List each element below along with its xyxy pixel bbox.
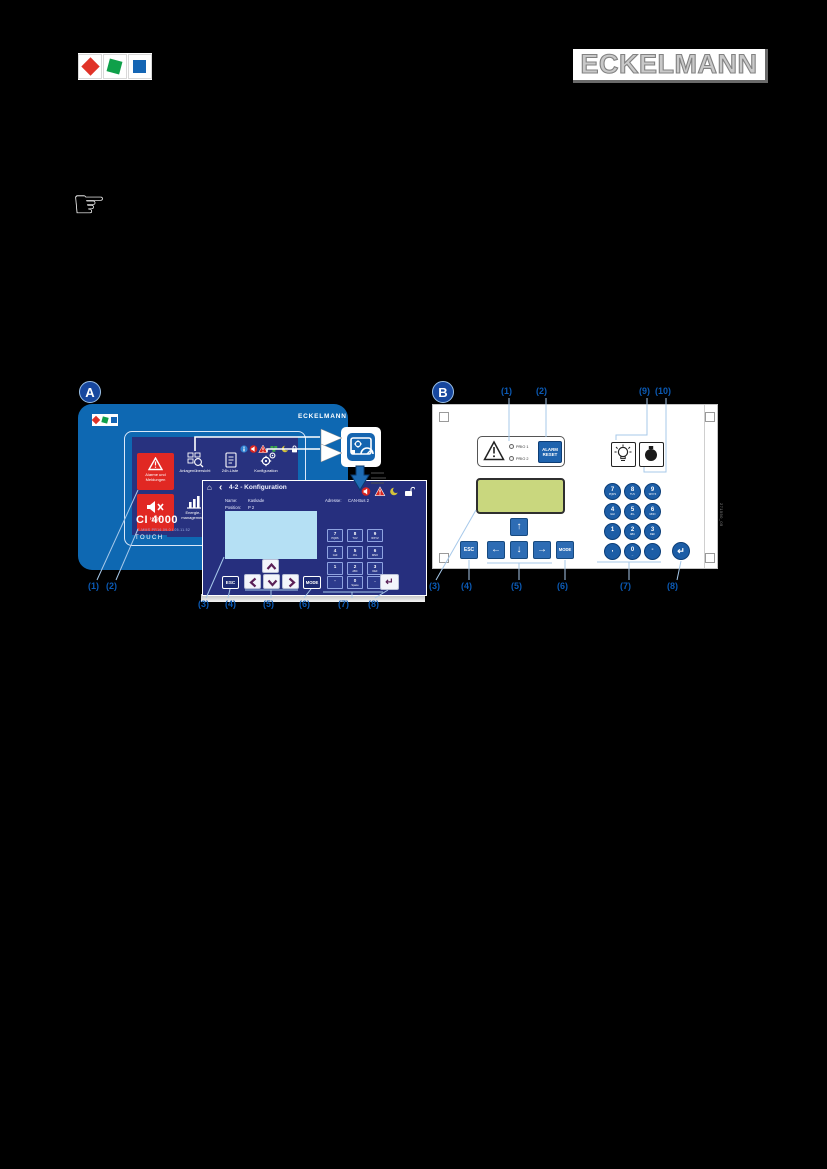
config-icon-box	[341, 427, 381, 467]
horn-mute-icon	[250, 445, 258, 453]
key-0-space[interactable]: 0Space	[347, 576, 363, 589]
service-moon-icon	[390, 487, 399, 495]
enter-button[interactable]: ↵	[672, 542, 690, 560]
callout-8: (8)	[368, 599, 379, 609]
callout-10: (10)	[655, 386, 671, 396]
info-icon	[240, 445, 247, 452]
logo-red-square-icon	[81, 57, 99, 75]
logo-green-square-icon	[107, 59, 123, 75]
key-7[interactable]: 7PQRS	[604, 483, 621, 500]
callout-2: (2)	[536, 386, 547, 396]
key-comma[interactable]: ,	[604, 543, 621, 560]
field-name-label: Name:	[225, 498, 237, 503]
key-0[interactable]: 0_	[624, 543, 641, 560]
config-dialog: ⌂ ‹ 4-2 - Konfiguration Name: Kaskade Po…	[202, 480, 427, 596]
back-chevron-icon[interactable]: ‹	[219, 482, 222, 493]
key-7[interactable]: 7PQRS	[327, 529, 343, 542]
tile-24h-label[interactable]: 24h-Liste	[212, 469, 248, 474]
arrow-down-button[interactable]: ↓	[510, 541, 528, 559]
panel-edge-line	[704, 405, 705, 568]
arrow-up-button[interactable]: ↑	[510, 518, 528, 536]
callout-2: (2)	[106, 581, 117, 591]
home-icon[interactable]: ⌂	[207, 483, 212, 492]
callout-9: (9)	[639, 386, 650, 396]
prio2-label: PRIO 2	[516, 457, 528, 461]
logo-green-square-icon	[101, 416, 108, 423]
callout-8: (8)	[667, 581, 678, 591]
key-8[interactable]: 8TUV	[347, 529, 363, 542]
screw-hole	[439, 553, 449, 563]
tile-config-label[interactable]: Konfiguration	[244, 469, 288, 474]
arrow-right-button[interactable]: →	[533, 541, 551, 559]
callout-5: (5)	[263, 599, 274, 609]
device-brand-logo	[92, 414, 118, 426]
arrow-up-button[interactable]	[262, 559, 279, 573]
field-address-value: CAN-Bus 2	[348, 498, 369, 503]
arrow-left-button[interactable]: ←	[487, 541, 505, 559]
manual-page: ECKELMANN ☞ A ECKELMANN	[0, 0, 827, 1169]
model-name: CI 4000	[136, 514, 178, 526]
lock-icon	[292, 446, 297, 453]
warning-triangle-icon	[483, 440, 505, 469]
callout-7: (7)	[620, 581, 631, 591]
key-3[interactable]: 3DEF	[644, 523, 661, 540]
gear-dial-icon[interactable]	[347, 433, 375, 461]
callout-1: (1)	[88, 581, 99, 591]
alarm-group: PRIO 1 PRIO 2 ALARM RESET	[477, 436, 565, 467]
logo-blue-square-icon	[133, 60, 146, 73]
dialog-title: 4-2 - Konfiguration	[229, 484, 287, 491]
figure-b-badge: B	[432, 381, 454, 403]
prio2-led	[509, 456, 514, 461]
alarm-reset-button[interactable]: ALARM RESET	[538, 441, 562, 463]
field-position-label: Position:	[225, 505, 241, 510]
lamp-test-button[interactable]	[611, 442, 636, 467]
arrow-left-button[interactable]	[244, 574, 261, 589]
lcd-display	[476, 478, 565, 514]
arrow-down-button[interactable]	[263, 574, 280, 589]
dialog-display	[225, 511, 317, 559]
lamp-filled-icon	[640, 443, 662, 465]
logo-cell	[103, 54, 127, 79]
callout-7: (7)	[338, 599, 349, 609]
enter-button[interactable]: ↵	[380, 574, 399, 590]
key-4[interactable]: 4GHI	[604, 503, 621, 520]
callout-6: (6)	[299, 599, 310, 609]
screw-hole	[705, 412, 715, 422]
buzzer-button[interactable]	[639, 442, 664, 467]
field-position-value: P 2	[248, 505, 254, 510]
logo-red-square-icon	[92, 416, 100, 424]
key-5[interactable]: 5JKL	[624, 503, 641, 520]
key-9[interactable]: 9WXYZ	[644, 483, 661, 500]
mode-button[interactable]: MODE	[303, 576, 321, 589]
prio1-led	[509, 444, 514, 449]
logo-cell	[78, 54, 102, 79]
key-minus[interactable]: -	[644, 543, 661, 560]
key-5[interactable]: 5JKL	[347, 546, 363, 559]
unlock-icon	[405, 487, 415, 496]
device-brand-name: ECKELMANN	[298, 413, 347, 420]
dialog-status-icons	[361, 484, 415, 502]
brand-wordmark: ECKELMANN	[573, 49, 768, 83]
field-address-label: Adresse:	[325, 498, 342, 503]
vertical-part-code: 271550_05	[719, 503, 724, 527]
callout-5: (5)	[511, 581, 522, 591]
tile-alarms[interactable]: Alarme und Meldungen	[137, 453, 174, 490]
key-1[interactable]: 1	[604, 523, 621, 540]
esc-button[interactable]: ESC	[222, 576, 239, 589]
key-2[interactable]: 2ABC	[347, 562, 363, 575]
screw-hole	[439, 412, 449, 422]
pointing-hand-icon: ☞	[72, 186, 106, 224]
key-1[interactable]: 1	[327, 562, 343, 575]
key-6[interactable]: 6MNO	[367, 546, 383, 559]
key-9[interactable]: 9WXYZ	[367, 529, 383, 542]
lamp-outline-icon	[612, 443, 634, 465]
key-4[interactable]: 4GHI	[327, 546, 343, 559]
callout-3: (3)	[198, 599, 209, 609]
callout-4: (4)	[225, 599, 236, 609]
key-minus[interactable]: -	[327, 576, 343, 589]
model-version: C-MMS PR16.09.0 L05.11.52	[137, 528, 190, 532]
service-moon-icon	[282, 445, 289, 452]
key-8[interactable]: 8TUV	[624, 483, 641, 500]
logo-cell	[128, 54, 152, 79]
arrow-right-button[interactable]	[282, 574, 299, 589]
brand-logo	[78, 53, 152, 80]
mode-button[interactable]: MODE	[556, 541, 574, 559]
callout-3: (3)	[429, 581, 440, 591]
figure-a-badge: A	[79, 381, 101, 403]
esc-button[interactable]: ESC	[460, 541, 478, 559]
logo-blue-square-icon	[111, 417, 117, 423]
key-2[interactable]: 2ABC	[624, 523, 641, 540]
key-6[interactable]: 6MNO	[644, 503, 661, 520]
callout-6: (6)	[557, 581, 568, 591]
touch-label: TOUCH	[132, 535, 167, 541]
field-name-value: Kaskade	[248, 498, 264, 503]
tile-label: Meldungen	[137, 478, 174, 483]
horn-mute-icon	[362, 487, 371, 496]
prio1-label: PRIO 1	[516, 445, 528, 449]
callout-1: (1)	[501, 386, 512, 396]
callout-4: (4)	[461, 581, 472, 591]
alarm-triangle-icon	[375, 487, 385, 496]
screw-hole	[705, 553, 715, 563]
